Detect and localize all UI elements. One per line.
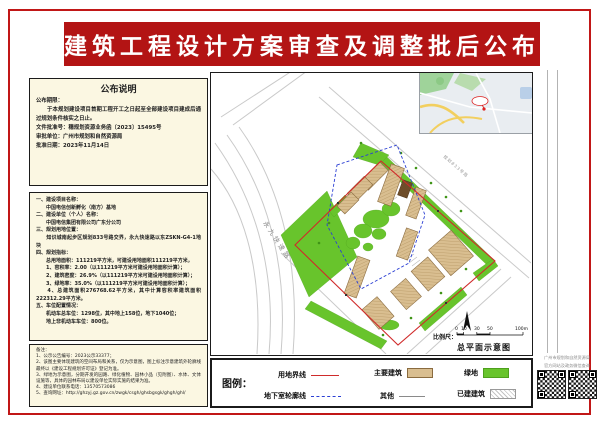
road-label-ne: 规划833号路 [442, 153, 471, 179]
legend-swatch-boundary [311, 375, 339, 376]
legend-swatch-existing [490, 389, 516, 399]
announcement-title: 公布说明 [36, 82, 201, 95]
plan-caption: 总平面示意图 [457, 342, 511, 352]
scale-tick: 10 [461, 326, 467, 332]
scale-bar: 比例尺： 0 10 30 50 100m [433, 326, 528, 341]
info-line: 五、车位配置情况： [36, 303, 201, 311]
qr-code-right [569, 371, 596, 398]
info-line: 一、建设项目名称： [36, 197, 201, 205]
legend-swatch-main-building [407, 368, 433, 378]
qr-caption-line2: 官方网站及政务微信查询 [536, 363, 598, 369]
note-line: 5、查询网址：http://ghzyj.gz.gov.cn/zwgk/csgh/… [36, 391, 201, 397]
announcement-line: 审批单位：广州市规划和自然资源局 [36, 133, 201, 142]
fold-line-2 [557, 70, 558, 353]
info-line: 机动车总车位：1298位，其中地上158位，地下1040位； [36, 311, 201, 319]
project-info-box: 一、建设项目名称： 中国电信创新孵化（南方）基地 二、建设单位（个人）名称： 中… [29, 192, 208, 341]
inset-map-svg [420, 73, 532, 133]
scale-tick: 0 [455, 326, 458, 332]
info-line: 地上非机动车车位：800位。 [36, 319, 201, 327]
legend-item-boundary: 用地界线 [278, 370, 339, 380]
info-line: 四、规划指标： [36, 250, 201, 258]
notes-box: 备注： 1、公示公告编号：2023公示33377； 2、该图主要体现建筑的空间布… [29, 344, 208, 407]
info-line: 3、绿地率：35.0%（以111219平方米可建设用地面积计算）； [36, 281, 201, 289]
announcement-box: 公布说明 公布期限： 于本规划建设项目首期工程开工之日起至全部建设项目建成后通过… [29, 78, 208, 186]
qr-caption-line1: 广州市规划和自然资源局 [536, 355, 598, 361]
legend-box: 图例： 用地界线 主要建筑 绿地 地下室轮廓线 其他 已建建筑 [210, 358, 533, 408]
scale-label: 比例尺： [433, 333, 457, 341]
scale-tick: 100m [515, 326, 528, 332]
legend-swatch-green [483, 368, 509, 378]
info-line: 1、容积率：2.00（以111219平方米可建设用地面积计算）； [36, 265, 201, 273]
qr-panel: 广州市规划和自然资源局 官方网站及政务微信查询 [536, 355, 598, 415]
fold-line-1 [547, 70, 548, 353]
legend-swatch-underground [311, 396, 341, 397]
site-plan-panel: 永九快速路 规划833号路 比例尺： 0 10 30 50 100m 总平面示意… [210, 72, 533, 356]
page-title: 建筑工程设计方案审查及调整批后公布 [64, 27, 540, 61]
legend-swatch-other [399, 396, 425, 397]
title-banner: 建筑工程设计方案审查及调整批后公布 [64, 22, 540, 66]
scale-tick: 30 [474, 326, 480, 332]
scale-tick: 50 [487, 326, 493, 332]
legend-title: 图例： [222, 375, 252, 390]
note-line: 3、绿地为示意图，分期开发的园路、绿化植物、园林小品（见附图）、水体、文体设施等… [36, 373, 201, 385]
info-line: 三、规划用地位置： [36, 227, 201, 235]
inset-location-map [419, 73, 532, 134]
announcement-line: 于本规划建设项目首期工程开工之日起至全部建设项目建成后通过规划条件核实之日止。 [36, 106, 201, 124]
legend-item-main-building: 主要建筑 [374, 368, 433, 378]
legend-item-underground: 地下室轮廓线 [264, 391, 341, 401]
announcement-line: 文件批准号：穗规划资源业务函〔2023〕15495号 [36, 124, 201, 133]
legend-item-other: 其他 [380, 391, 425, 401]
info-line: 4、总建筑面积276768.62平方米，其中计算容积率建筑面积222312.29… [36, 288, 201, 303]
note-line: 2、该图主要体现建筑的空间布局和关系，仅为示意图，图上标注示意建筑外轮廓线最终以… [36, 360, 201, 372]
legend-item-green: 绿地 [464, 368, 509, 378]
announcement-line: 批准日期：2023年11月14日 [36, 142, 201, 151]
announcement-line: 公布期限： [36, 97, 201, 106]
info-line: 知识城南起步区规划833号路交界，永九快速路以东ZSKN-G4-1地块 [36, 235, 201, 250]
legend-item-existing: 已建建筑 [457, 389, 516, 399]
info-line: 二、建设单位（个人）名称： [36, 212, 201, 220]
qr-code-left [538, 371, 565, 398]
info-line: 2、建筑密度：26.9%（以111219平方米可建设用地面积计算）； [36, 273, 201, 281]
